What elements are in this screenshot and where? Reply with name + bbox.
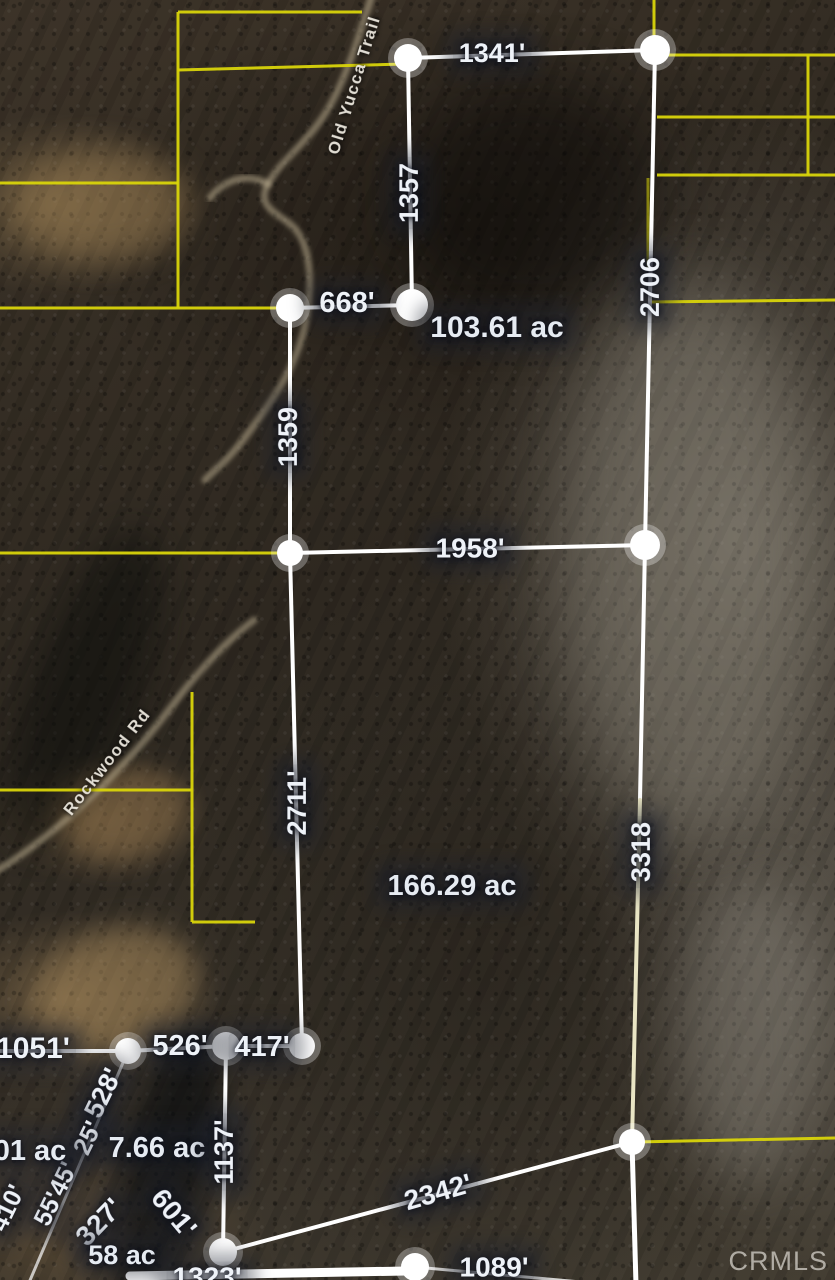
- label-dim-1323: 1323': [167, 1261, 248, 1280]
- label-dim-2711: 2711': [282, 765, 312, 842]
- label-dim-1051: 1051': [0, 1032, 76, 1066]
- label-road-rockwood-rd: Rockwood Rd: [60, 705, 155, 819]
- label-acreage-166-29: 166.29 ac: [381, 870, 522, 902]
- label-acreage-01: 01 ac: [0, 1135, 72, 1167]
- label-dim-1359: 1359: [273, 401, 303, 473]
- overlay-labels: 1341'1357668'103.61 ac270613591958'2711'…: [0, 0, 835, 1280]
- label-dim-1089: 1089': [454, 1251, 535, 1280]
- crmls-watermark: CRMLS: [728, 1246, 828, 1277]
- label-dim-1341: 1341': [453, 38, 532, 68]
- label-dim-410: 410': [0, 1175, 34, 1241]
- label-dim-1137: 1137': [209, 1114, 239, 1191]
- label-dim-668: 668': [313, 287, 380, 319]
- label-dim-1958: 1958': [430, 532, 511, 563]
- label-acreage-7-66: 7.66 ac: [103, 1132, 212, 1164]
- label-acreage-103-61: 103.61 ac: [424, 311, 569, 345]
- label-road-old-yucca-trail: Old Yucca Trail: [324, 13, 384, 156]
- map-stage: 1341'1357668'103.61 ac270613591958'2711'…: [0, 0, 835, 1280]
- label-dim-2342: 2342': [395, 1166, 481, 1218]
- label-dim-417: 417': [228, 1031, 295, 1063]
- label-dim-601: 601': [141, 1178, 207, 1248]
- label-dim-2706: 2706: [635, 251, 665, 323]
- label-dim-1357: 1357: [394, 157, 424, 229]
- label-dim-526: 526': [146, 1030, 213, 1062]
- label-dim-3318: 3318: [626, 816, 656, 888]
- label-acreage-58: 58 ac: [82, 1240, 162, 1270]
